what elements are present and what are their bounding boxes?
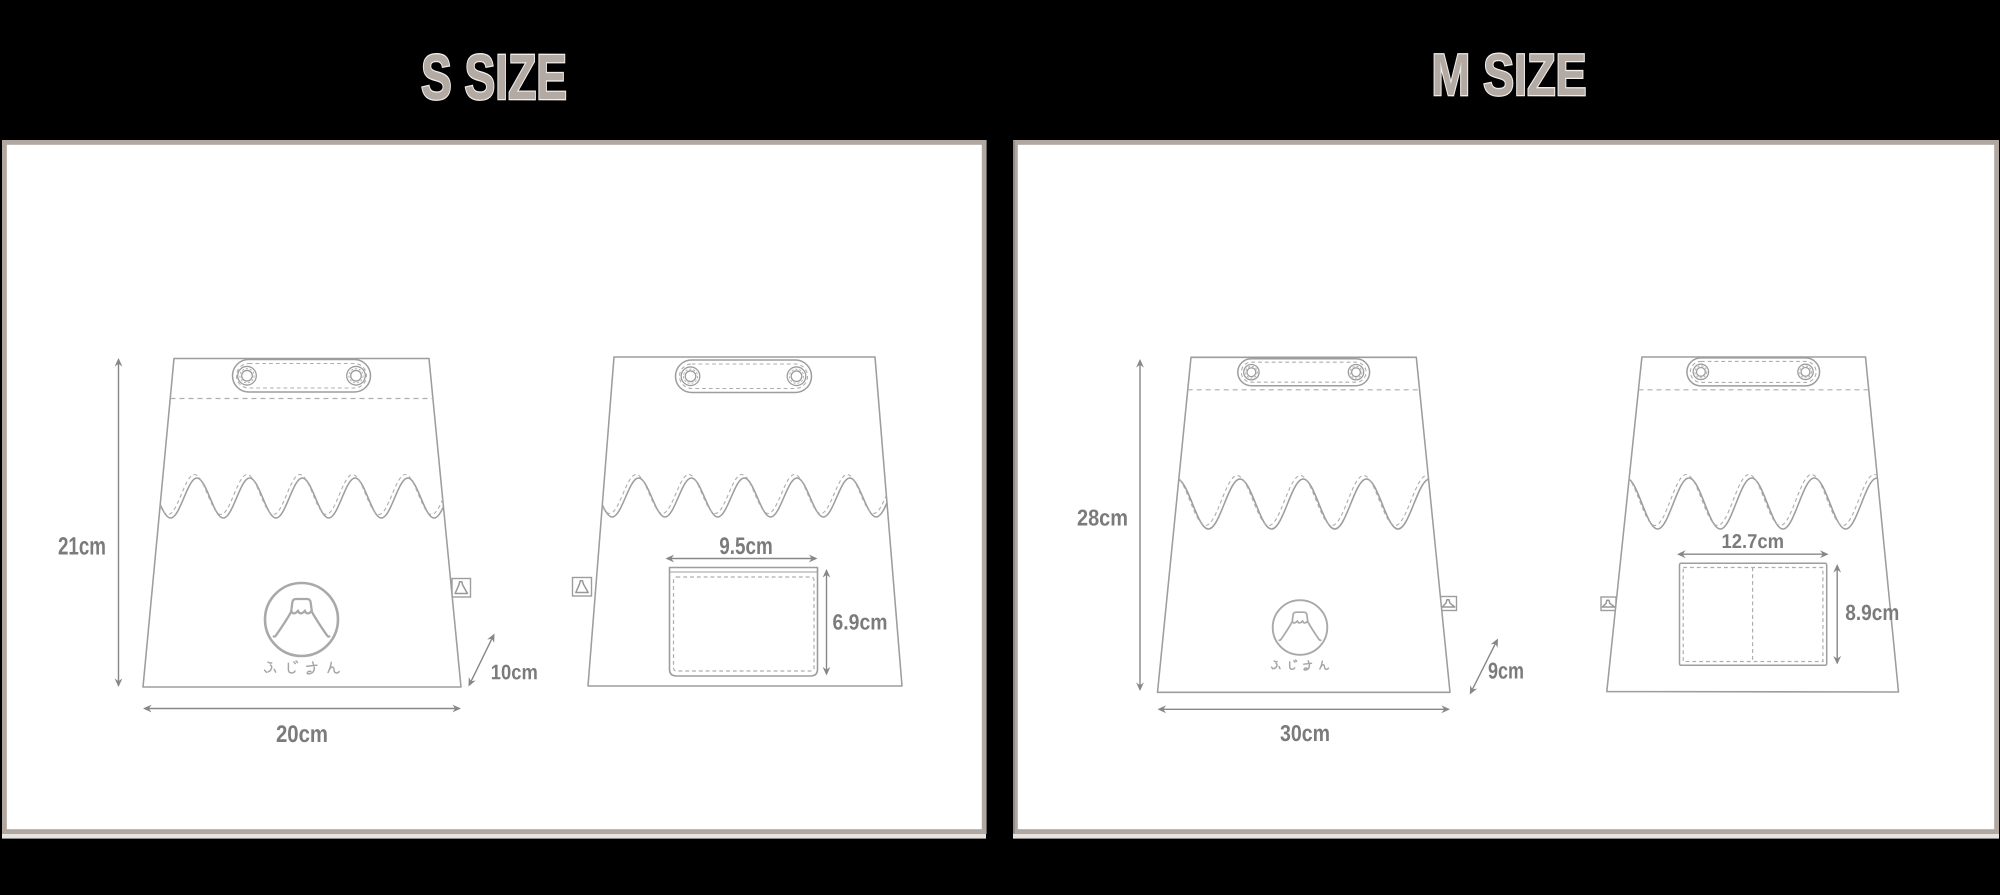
svg-text:20cm: 20cm [276,721,328,748]
svg-text:M SIZE: M SIZE [1431,42,1586,108]
svg-text:6.9cm: 6.9cm [832,610,887,635]
svg-text:30cm: 30cm [1280,720,1330,746]
svg-text:12.7cm: 12.7cm [1722,531,1785,553]
svg-text:21cm: 21cm [58,532,106,560]
svg-text:28cm: 28cm [1077,504,1128,530]
svg-text:10cm: 10cm [491,661,538,684]
svg-text:9.5cm: 9.5cm [719,533,773,560]
svg-text:9cm: 9cm [1488,657,1524,683]
svg-text:S SIZE: S SIZE [421,41,567,113]
svg-text:8.9cm: 8.9cm [1845,600,1899,625]
